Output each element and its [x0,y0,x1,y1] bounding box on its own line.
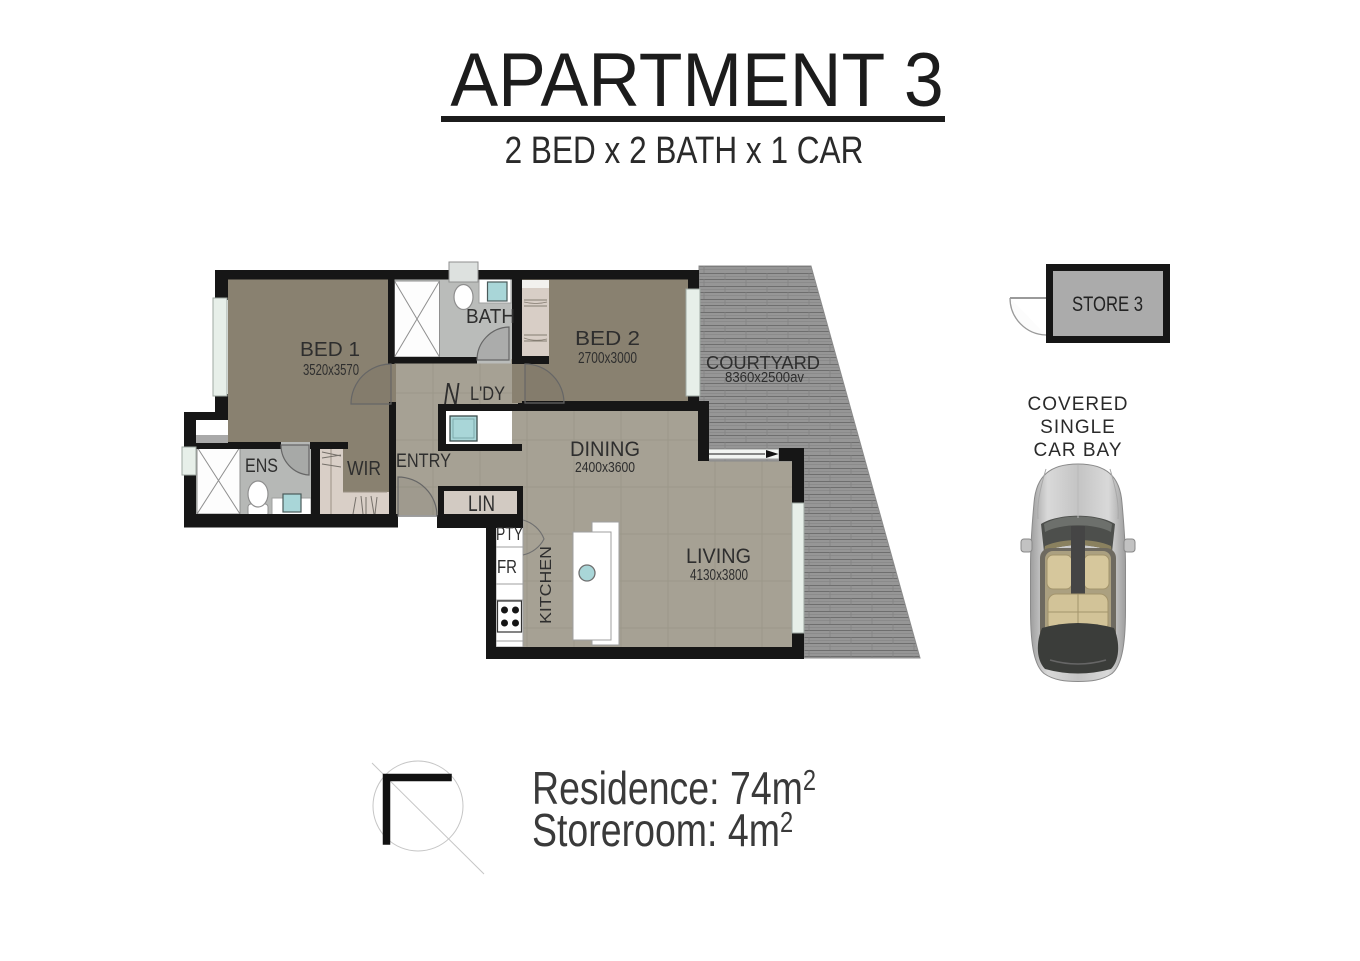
svg-text:PTY: PTY [496,524,523,544]
svg-text:STORE 3: STORE 3 [1072,293,1143,316]
svg-text:L'DY: L'DY [470,384,505,405]
svg-text:LIVING: LIVING [686,545,751,568]
svg-text:2400x3600: 2400x3600 [575,459,635,476]
svg-text:ENTRY: ENTRY [396,451,451,472]
svg-text:FR: FR [497,557,517,577]
svg-text:SINGLE: SINGLE [1040,417,1116,438]
svg-text:ENS: ENS [245,456,278,477]
svg-text:CAR BAY: CAR BAY [1033,440,1122,461]
svg-text:N: N [444,376,460,411]
svg-text:LIN: LIN [468,491,495,516]
svg-text:BED 2: BED 2 [575,328,640,350]
svg-text:KITCHEN: KITCHEN [538,546,555,624]
svg-text:4130x3800: 4130x3800 [690,567,748,584]
svg-text:8360x2500av: 8360x2500av [725,370,805,386]
svg-text:3520x3570: 3520x3570 [303,362,359,379]
svg-text:BED 1: BED 1 [300,339,360,361]
svg-text:BATH: BATH [466,306,515,328]
svg-text:WIR: WIR [347,458,381,480]
svg-text:DINING: DINING [570,438,640,461]
svg-text:COVERED: COVERED [1028,394,1129,415]
svg-text:2700x3000: 2700x3000 [578,350,637,367]
